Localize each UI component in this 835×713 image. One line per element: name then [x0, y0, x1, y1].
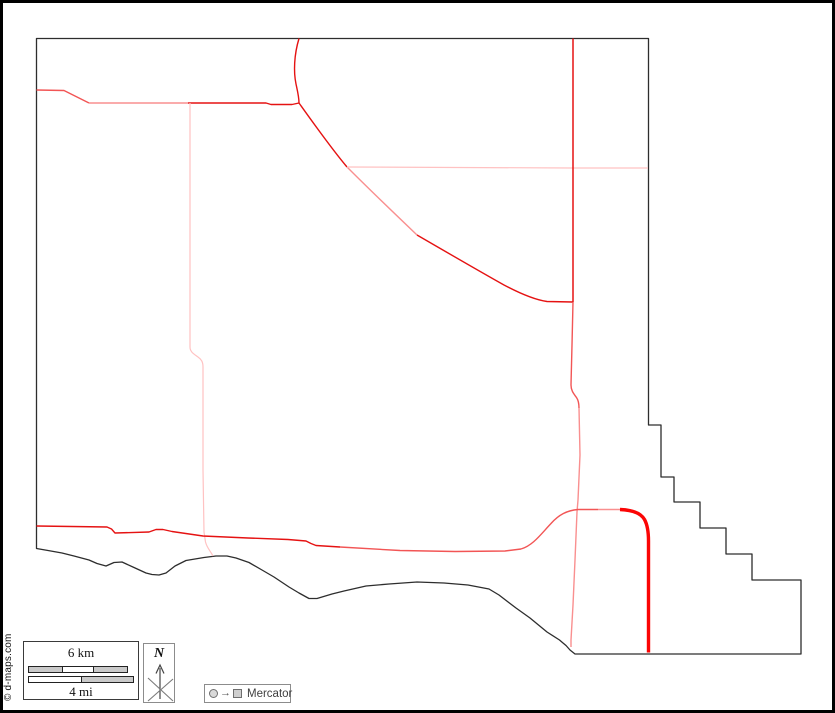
copyright-text: © d-maps.com	[3, 633, 14, 701]
highway-thick	[620, 510, 649, 653]
scale-box: 6 km 4 mi	[23, 641, 139, 700]
road-south-highway-west	[37, 526, 341, 547]
road-west-horizontal-red	[188, 103, 299, 105]
scale-segment	[62, 667, 95, 672]
map-page: 6 km 4 mi N → Mercator © d-maps.com	[0, 0, 835, 713]
road-diagonal-upper	[299, 103, 347, 167]
road-east-pale-horizontal	[347, 167, 648, 168]
projection-legend: → Mercator	[204, 684, 291, 703]
road-west-pale-vertical-upper	[190, 103, 203, 367]
scale-bar-km	[28, 666, 128, 673]
arrow-right-icon: →	[220, 689, 231, 698]
scale-segment	[29, 677, 81, 682]
road-diagonal-lower	[417, 235, 573, 302]
map-canvas	[0, 0, 835, 713]
road-south-highway-mid	[340, 547, 521, 552]
scale-km-label: 6 km	[24, 645, 138, 660]
scale-segment	[81, 677, 133, 682]
sphere-icon	[209, 689, 218, 698]
road-west-pale-vertical-lower	[203, 367, 213, 556]
road-diagonal-mid	[347, 167, 417, 235]
road-north-connector	[295, 39, 299, 104]
north-arrow-box: N	[143, 643, 175, 703]
county-boundary	[37, 39, 802, 655]
scale-segment	[29, 667, 62, 672]
road-south-curve-up	[521, 510, 598, 550]
road-main-vertical-south	[571, 408, 580, 647]
scale-mi-label: 4 mi	[24, 684, 138, 699]
plane-icon	[233, 689, 242, 698]
road-west-entry	[37, 90, 90, 103]
projection-name: Mercator	[247, 688, 292, 700]
scale-segment	[94, 667, 127, 672]
scale-bar-mi	[28, 676, 134, 683]
road-main-vertical-mid	[571, 302, 579, 408]
compass-star-icon	[144, 660, 176, 704]
